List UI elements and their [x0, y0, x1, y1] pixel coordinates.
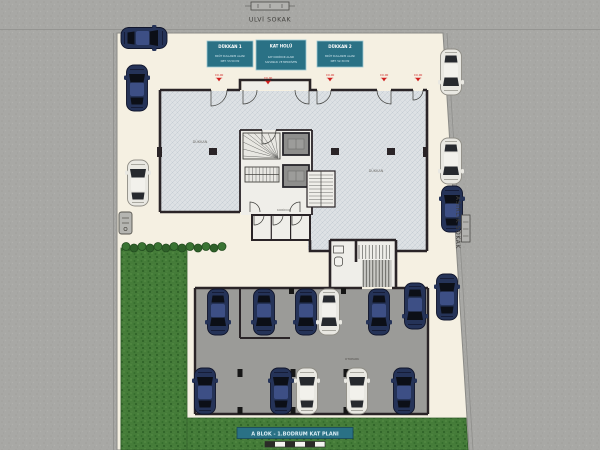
- shop-left-label: DÜKKAN: [193, 139, 208, 144]
- street-sign-top: [245, 2, 295, 10]
- side-stair: [307, 171, 335, 207]
- bush: [186, 243, 194, 251]
- car-white: [125, 160, 151, 206]
- bush: [162, 244, 170, 252]
- street-right-label: ASIRLIK SOKAK: [454, 196, 461, 249]
- site-plan-drawing: DÜKKAN DÜKKAN KORİDOR ±0.00 ±0.00 ±0.00 …: [0, 0, 600, 450]
- bush: [146, 244, 154, 252]
- car-navy: [293, 289, 319, 335]
- shop-right-label: DÜKKAN: [369, 168, 384, 173]
- bush: [210, 244, 218, 252]
- car-white: [438, 49, 464, 95]
- car-navy: [268, 368, 294, 414]
- info-box-dukkan-1: DÜKKAN 1 BRÜT KULLANIM ALANI NET: 53.50 …: [207, 41, 253, 67]
- car-navy: [251, 289, 277, 335]
- bush: [154, 243, 162, 251]
- bush: [130, 244, 138, 252]
- car-navy: [402, 283, 428, 329]
- car-navy: [121, 25, 167, 51]
- entry-porch-floor: [242, 81, 308, 90]
- elevator-shaft: [283, 133, 309, 155]
- svg-text:±0.00: ±0.00: [326, 73, 335, 77]
- grass-lawn: [121, 248, 187, 450]
- footer-title-bar: A BLOK - 1.BODRUM KAT PLANI: [237, 428, 353, 439]
- svg-text:±0.00: ±0.00: [215, 73, 224, 77]
- info-box-title: DÜKKAN 1: [218, 44, 242, 49]
- info-box-title: KAT HOLÜ: [270, 44, 292, 49]
- svg-text:±0.00: ±0.00: [264, 76, 273, 80]
- car-navy: [434, 274, 460, 320]
- elevator-shaft: [283, 165, 309, 187]
- info-box-title: DÜKKAN 2: [328, 44, 352, 49]
- car-white: [294, 368, 320, 414]
- svg-text:±0.00: ±0.00: [414, 73, 423, 77]
- car-navy: [366, 289, 392, 335]
- bush: [218, 243, 226, 251]
- straight-stair: [245, 167, 279, 182]
- car-white: [344, 368, 370, 414]
- car-navy: [205, 289, 231, 335]
- street-sign-left: [119, 212, 132, 234]
- car-navy: [391, 368, 417, 414]
- info-box-kat-holu: KAT HOLÜ KAT KORİDOR ALANI SAHANLIK VE M…: [256, 40, 306, 70]
- site-plan-page: DÜKKAN DÜKKAN KORİDOR ±0.00 ±0.00 ±0.00 …: [0, 0, 600, 450]
- bush: [202, 243, 210, 251]
- garage-label: OTOPARK: [345, 357, 360, 361]
- scale-bar: [265, 442, 325, 448]
- street-sign-right: [462, 215, 471, 242]
- bush: [178, 244, 186, 252]
- bush: [138, 243, 146, 251]
- corridor-label: KORİDOR: [277, 207, 291, 212]
- bush: [194, 244, 202, 252]
- info-boxes: DÜKKAN 1 BRÜT KULLANIM ALANI NET: 53.50 …: [207, 40, 363, 70]
- info-box-line: NET: 52.30 M2: [331, 59, 350, 63]
- bush: [122, 243, 130, 251]
- footer-title: A BLOK - 1.BODRUM KAT PLANI: [251, 432, 339, 438]
- car-white: [316, 289, 342, 335]
- car-white: [438, 138, 464, 184]
- parking-ramp: [363, 260, 392, 287]
- info-box-line: NET: 53.50 M2: [221, 59, 240, 63]
- svg-text:±0.00: ±0.00: [380, 73, 389, 77]
- car-navy: [192, 368, 218, 414]
- street-top-label: ULVİ SOKAK: [249, 15, 292, 24]
- bush: [170, 243, 178, 251]
- info-box-dukkan-2: DÜKKAN 2 BRÜT KULLANIM ALANI NET: 52.30 …: [317, 41, 363, 67]
- car-navy: [124, 65, 150, 111]
